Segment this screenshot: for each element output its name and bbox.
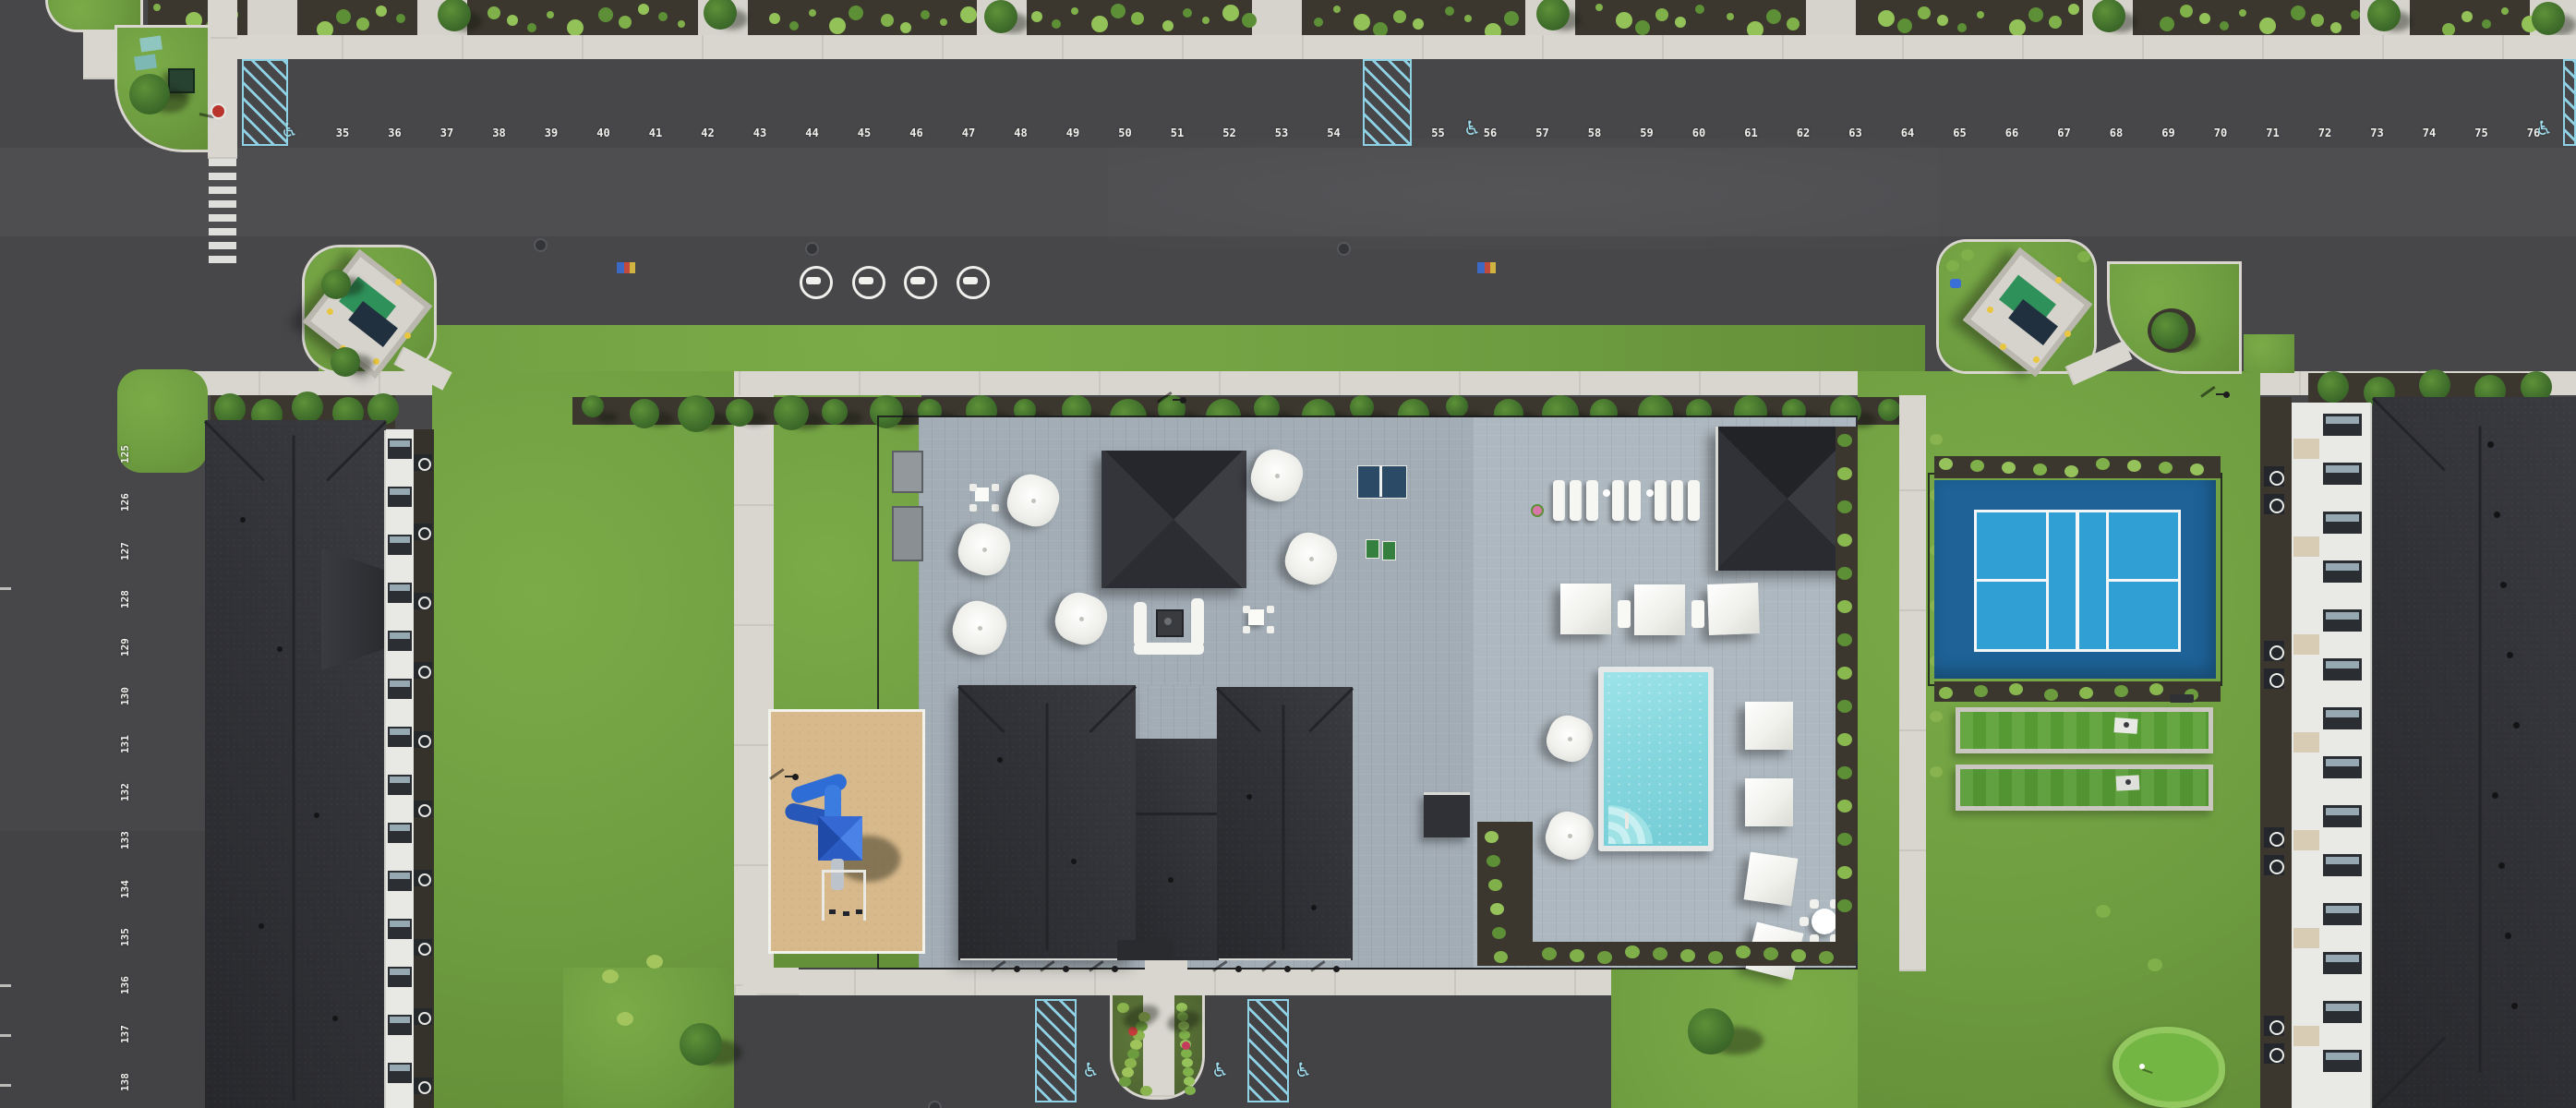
crosswalk-bar — [209, 256, 236, 263]
ping-pong-net-line — [1379, 465, 1382, 497]
lounge-chair — [1553, 480, 1565, 521]
shrub — [2220, 21, 2229, 30]
parking-stall-line — [1362, 237, 1365, 323]
cornhole-board — [1366, 539, 1379, 559]
window-glass — [2326, 661, 2359, 668]
club-ridge — [1282, 705, 1285, 951]
roof-vent — [2505, 933, 2511, 939]
roof-vent — [2500, 582, 2507, 588]
island-plant — [1183, 1067, 1194, 1077]
ac-fan-icon — [2269, 860, 2284, 874]
shrub — [1071, 7, 1078, 15]
ac-fan-icon — [2269, 1048, 2284, 1063]
right-apartment-roof — [2373, 397, 2576, 1108]
hedge-tree — [678, 395, 715, 432]
parking-stall-line — [1936, 237, 1939, 323]
parking-stall-number: 128 — [118, 588, 133, 610]
left-apartment-roof — [205, 420, 386, 1108]
shrub — [1763, 947, 1778, 960]
street-lamp — [1180, 397, 1186, 403]
island-left-walkpad — [83, 26, 118, 79]
shrub — [1492, 927, 1506, 939]
hedge-tree — [630, 399, 659, 428]
swing-seat — [829, 909, 836, 914]
patio-table — [975, 488, 989, 501]
tree — [984, 0, 1017, 33]
street-lamp — [1063, 966, 1069, 972]
swing-seat — [856, 909, 862, 914]
shrub — [1222, 5, 1239, 21]
shrub — [1314, 18, 1323, 27]
parking-stall-line — [115, 674, 205, 677]
window-glass — [390, 1017, 410, 1023]
shrub — [1635, 20, 1650, 35]
neighbor-stall-tick — [0, 587, 11, 590]
shrub — [1837, 899, 1852, 912]
window-glass — [2326, 563, 2359, 571]
parking-stall-number: 47 — [943, 126, 994, 140]
shrub — [2009, 683, 2023, 695]
shrub — [1464, 15, 1472, 22]
umbrella-center — [1079, 617, 1084, 621]
ac-fan-icon — [418, 1012, 431, 1025]
clubhouse-entry-notch — [1148, 685, 1205, 739]
shrub — [2148, 958, 2162, 971]
stop-sign — [211, 103, 226, 119]
top-sidewalk — [102, 35, 2576, 59]
accessible-hatch-stall — [1363, 59, 1412, 146]
dining-chair — [1800, 917, 1809, 926]
shrub — [1490, 903, 1504, 915]
swing-frame-pole — [863, 870, 866, 921]
ac-fan-icon — [418, 666, 431, 679]
shrub — [1970, 460, 1984, 472]
bollard-yellow — [404, 332, 411, 339]
parking-stall-line — [1571, 237, 1573, 323]
umbrella-center — [1568, 737, 1572, 741]
ev-stall-car-glyph — [910, 277, 925, 284]
shrub — [1736, 945, 1751, 958]
parking-stall-number: 53 — [1256, 126, 1307, 140]
accessible-parking-symbol: ♿ — [1082, 1060, 1108, 1080]
shrub — [2330, 22, 2341, 33]
shrub — [1837, 500, 1852, 513]
lounge-chair — [1655, 480, 1667, 521]
shrub — [1837, 766, 1852, 779]
parking-stall-line — [958, 999, 961, 1108]
parking-stall-line — [828, 999, 831, 1108]
tree — [129, 74, 170, 114]
patio-pad — [2293, 732, 2319, 753]
shrub — [2009, 19, 2026, 36]
lounge-chair — [1629, 480, 1641, 521]
shrub — [769, 13, 780, 24]
ac-fan-icon — [418, 527, 431, 540]
shrub — [1653, 947, 1667, 960]
parking-stall-number: 41 — [630, 126, 681, 140]
accessible-parking-symbol: ♿ — [281, 120, 308, 140]
window-glass — [2326, 465, 2359, 473]
shrub — [547, 11, 554, 18]
shrub — [1354, 14, 1370, 30]
ac-fan-icon — [2269, 673, 2284, 688]
shrub — [567, 19, 584, 36]
shrub — [1946, 260, 1959, 271]
patio-pad — [2293, 830, 2319, 850]
roof-vent — [1246, 794, 1252, 800]
parking-stall-line — [840, 237, 843, 323]
shrub — [1445, 6, 1454, 16]
bollard-yellow — [2064, 331, 2071, 337]
patio-table — [1248, 609, 1264, 625]
parking-stall-number: 58 — [1569, 126, 1620, 140]
shrub — [789, 21, 799, 30]
shrub — [1616, 12, 1632, 29]
tree — [2092, 0, 2125, 32]
parking-stall-number: 69 — [2143, 126, 2195, 140]
side-table — [1603, 489, 1610, 497]
shrub — [2077, 251, 2090, 262]
island-plant — [1179, 1030, 1190, 1040]
parking-stall-number: 45 — [838, 126, 890, 140]
roof-ridge — [293, 436, 295, 1101]
bollard-yellow — [395, 279, 402, 285]
street-lamp — [2223, 391, 2230, 398]
island-plant — [1182, 1058, 1193, 1067]
island-plant — [1117, 1003, 1129, 1013]
parking-stall-line — [115, 432, 205, 435]
game-lawn-turf — [1960, 769, 2209, 806]
shrub — [960, 6, 977, 23]
window-glass — [390, 921, 410, 927]
shrub — [1837, 600, 1852, 613]
parking-stall-line — [115, 963, 205, 966]
parking-stall-number: 132 — [118, 781, 133, 803]
pickleball-net-line — [2076, 510, 2079, 652]
fire-pit-center — [1164, 618, 1172, 625]
roof-vent — [2507, 652, 2513, 658]
clubhouse-south-gable — [1117, 940, 1173, 960]
shrub — [1504, 11, 1519, 26]
parking-stall-number: 135 — [118, 926, 133, 948]
parking-stall-line — [997, 237, 1000, 323]
shrub — [2033, 464, 2047, 476]
ping-pong-table — [1357, 465, 1407, 499]
umbrella-center — [978, 626, 982, 631]
right-north-walk — [1899, 395, 1926, 971]
parking-stall-line — [1727, 237, 1730, 323]
hedge-tree — [822, 399, 848, 425]
roof-vent — [240, 517, 246, 523]
shrub — [1837, 833, 1852, 846]
island-plant — [1185, 1086, 1196, 1095]
shrub — [1937, 15, 1948, 26]
shrub — [376, 6, 387, 17]
parking-stall-line — [475, 237, 478, 323]
shrub — [2002, 462, 2016, 474]
patio-chair — [969, 504, 977, 512]
parking-stall-line — [1310, 237, 1313, 323]
shrub — [1939, 687, 1953, 699]
parking-stall-number: 129 — [118, 636, 133, 658]
shrub — [356, 18, 369, 30]
cabana — [1744, 852, 1799, 907]
pickleball-center-line — [1974, 579, 2046, 582]
patio-chair — [992, 504, 999, 512]
window-glass — [390, 584, 410, 591]
shrub — [2044, 689, 2058, 701]
parking-stall-line — [1779, 237, 1782, 323]
window-glass — [390, 536, 410, 543]
parking-stall-line — [115, 915, 205, 918]
grill-counter — [892, 451, 923, 493]
parking-stall-line — [1599, 999, 1602, 1108]
window-glass — [2326, 612, 2359, 620]
window-glass — [390, 1065, 410, 1071]
play-slide-run — [831, 859, 844, 890]
firepit-sofa — [1134, 602, 1147, 646]
shrub — [1837, 534, 1852, 547]
shrub — [2190, 464, 2204, 476]
accessible-hatch-right — [2563, 59, 2576, 146]
shrub — [849, 6, 863, 20]
parking-stall-line — [684, 237, 687, 323]
patio-pad — [2293, 634, 2319, 655]
shrub — [921, 10, 930, 19]
shrub — [881, 14, 894, 27]
window-glass — [390, 825, 410, 831]
shrub — [1333, 6, 1341, 13]
parking-stall-line — [1333, 999, 1336, 1108]
umbrella-center — [1309, 557, 1314, 561]
club-gutter — [1219, 958, 1351, 960]
parking-stall-number: 71 — [2247, 126, 2299, 140]
parking-stall-number: 40 — [578, 126, 630, 140]
parking-stall-line — [1206, 237, 1209, 323]
parking-stall-line — [1258, 237, 1260, 323]
tree — [331, 347, 360, 377]
shrub — [1708, 951, 1723, 964]
ev-stall-car-glyph — [806, 277, 821, 284]
ac-fan-icon — [2269, 832, 2284, 847]
street-lamp — [1014, 966, 1020, 972]
roof-vent — [277, 646, 283, 652]
shrub — [2096, 458, 2110, 470]
shrub — [1162, 20, 1174, 31]
parking-stall-line — [915, 999, 918, 1108]
shrub — [1837, 700, 1852, 713]
crosswalk-bar — [209, 173, 236, 180]
shrub — [2482, 19, 2491, 29]
shrub — [638, 4, 649, 15]
umbrella-center — [982, 548, 987, 552]
parking-stall-number: 60 — [1673, 126, 1725, 140]
parking-stall-number: 66 — [1986, 126, 2038, 140]
parking-stall-line — [1289, 999, 1292, 1108]
shrub — [1939, 458, 1953, 470]
shrub — [2239, 9, 2246, 17]
shrub — [2291, 6, 2305, 20]
roof-vent — [1071, 859, 1077, 864]
shrub — [336, 9, 351, 24]
shrub — [1413, 18, 1424, 30]
pavement-marking-colored — [617, 262, 635, 273]
ac-fan-icon — [418, 458, 431, 471]
shrub — [1091, 16, 1108, 32]
parking-stall-number: 127 — [118, 540, 133, 562]
patio-chair — [1267, 626, 1274, 633]
hedge-tree — [726, 399, 753, 427]
street-lamp — [1333, 966, 1340, 972]
shrub — [488, 6, 500, 19]
accessible-parking-symbol: ♿ — [2535, 118, 2563, 138]
parking-stall-line — [1832, 237, 1835, 323]
ac-fan-icon — [2269, 499, 2284, 513]
shrub — [1494, 951, 1508, 963]
shrub — [1918, 6, 1931, 19]
parking-stall-line — [527, 237, 530, 323]
parking-stall-line — [115, 625, 205, 628]
parking-stall-line — [893, 237, 896, 323]
shrub — [1131, 12, 1144, 25]
crosswalk-bar — [209, 242, 236, 249]
window-glass — [2326, 710, 2359, 717]
ac-fan-icon — [2269, 471, 2284, 486]
clubhouse-east-wing — [1217, 687, 1353, 960]
parking-stall-line — [115, 770, 205, 773]
lounge-chair — [1612, 480, 1624, 521]
parking-stall-number: 54 — [1308, 126, 1360, 140]
accessible-hatch-stall — [1247, 999, 1289, 1102]
umbrella-center — [1568, 834, 1572, 838]
parking-stall-number: 64 — [1882, 126, 1933, 140]
shrub — [1111, 4, 1125, 18]
roof-vent — [2513, 722, 2520, 729]
parking-stall-number: 61 — [1726, 126, 1777, 140]
shrub — [1597, 951, 1612, 964]
grass-north-strip — [319, 325, 1925, 371]
parking-stall-line — [1153, 237, 1156, 323]
ev-stall-car-glyph — [963, 277, 978, 284]
roof-vent — [1311, 905, 1317, 910]
utility-pad-teal — [139, 35, 163, 52]
shrub — [900, 22, 911, 33]
crosswalk-bar — [209, 214, 236, 222]
putting-flag — [2139, 1064, 2145, 1069]
window-glass — [390, 873, 410, 879]
bollard-yellow — [2033, 356, 2040, 363]
pickleball-center-line — [2109, 579, 2181, 582]
window-glass — [390, 680, 410, 687]
ac-fan-icon — [418, 735, 431, 748]
shrub — [2501, 7, 2509, 15]
parking-stall-line — [1002, 999, 1005, 1108]
parking-stall-line — [115, 867, 205, 870]
parking-stall-number: 136 — [118, 974, 133, 996]
shrub — [2064, 465, 2078, 477]
roof-vent — [2498, 862, 2505, 869]
tree — [1688, 1008, 1734, 1054]
shrub — [619, 16, 632, 29]
crosswalk-bar — [209, 228, 236, 235]
parking-stall-line — [1519, 237, 1522, 323]
shrub — [2351, 10, 2360, 19]
shrub — [1766, 9, 1781, 24]
window-glass — [2326, 514, 2359, 522]
parking-stall-number: 49 — [1047, 126, 1099, 140]
window-glass — [390, 440, 410, 447]
parking-stall-line — [736, 237, 739, 323]
parking-stall-line — [1414, 237, 1417, 323]
parking-stall-number: 57 — [1517, 126, 1569, 140]
club-gutter — [960, 958, 1134, 960]
shrub — [1695, 5, 1704, 14]
crosswalk-bar — [209, 200, 236, 208]
shrub — [2442, 23, 2455, 36]
patio-chair — [1243, 606, 1250, 613]
patio-pad — [2293, 536, 2319, 557]
ac-fan-icon — [2269, 645, 2284, 660]
shrub — [1183, 8, 1192, 18]
shrub — [940, 18, 947, 26]
parking-stall-line — [115, 818, 205, 821]
patio-chair — [1243, 626, 1250, 633]
aerial-photo-stage: ♿353637383940414243444546474849505152535… — [0, 0, 2576, 1108]
parking-stall-line — [1675, 237, 1678, 323]
shrub — [2049, 16, 2062, 29]
shrub — [1837, 800, 1852, 813]
neighbor-stall-tick — [0, 984, 11, 987]
parking-stall-line — [115, 1060, 205, 1063]
grill-counter — [892, 506, 923, 561]
shrub — [2311, 14, 2324, 27]
patio-pad — [2293, 1026, 2319, 1046]
window-glass — [2326, 857, 2359, 864]
parking-stall-number: 43 — [734, 126, 786, 140]
street-lamp — [1235, 966, 1242, 972]
island-entry-walk — [208, 0, 237, 159]
street-lamp — [792, 774, 799, 780]
parking-stall-number: 134 — [118, 878, 133, 900]
roof-vent — [1168, 877, 1174, 883]
parking-stall-number: 72 — [2299, 126, 2351, 140]
roof-vent — [332, 1016, 338, 1021]
shrub — [809, 9, 816, 17]
shrub — [1837, 467, 1852, 480]
shrub — [1977, 11, 1984, 18]
garage-apron — [1252, 0, 1302, 35]
tree — [292, 391, 323, 423]
shrub — [1837, 866, 1852, 879]
grass-right-verge — [2244, 334, 2294, 373]
gutter-line — [384, 430, 386, 1108]
parking-stall-line — [872, 999, 874, 1108]
shrub — [1680, 949, 1695, 962]
pool-bed-sw — [1477, 822, 1533, 966]
window-glass — [390, 729, 410, 735]
parking-stall-number: 70 — [2195, 126, 2246, 140]
parking-stall-number: 59 — [1621, 126, 1673, 140]
shrub — [617, 1012, 633, 1026]
parking-stall-number: 35 — [317, 126, 368, 140]
parking-stall-line — [115, 529, 205, 532]
parking-stall-number: 39 — [525, 126, 577, 140]
crosswalk-bar — [209, 187, 236, 194]
roof-ridge — [2479, 427, 2482, 1073]
left-building-facade — [386, 429, 414, 1108]
flower-pot-red — [1533, 506, 1542, 515]
parking-stall-line — [115, 577, 205, 580]
